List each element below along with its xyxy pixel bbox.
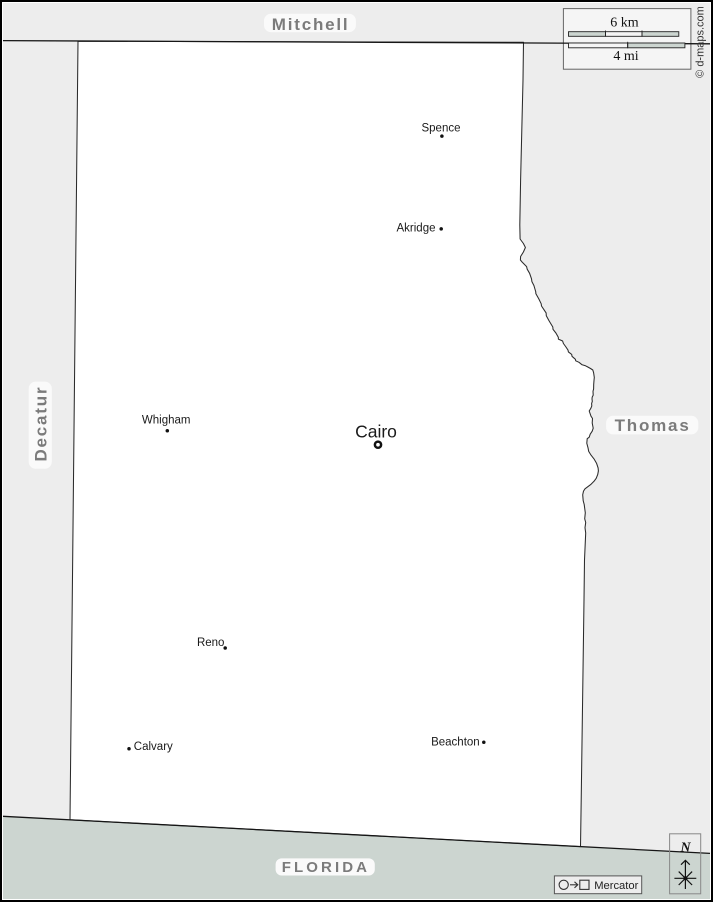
svg-text:Cairo: Cairo [355, 421, 397, 441]
svg-text:Mitchell: Mitchell [272, 15, 350, 34]
svg-text:Reno: Reno [197, 637, 225, 649]
svg-text:Beachton: Beachton [431, 736, 480, 748]
svg-text:6 km: 6 km [610, 16, 639, 31]
svg-text:Decatur: Decatur [32, 386, 51, 462]
svg-text:N: N [680, 840, 692, 855]
svg-text:FLORIDA: FLORIDA [282, 859, 370, 876]
svg-text:Mercator: Mercator [594, 880, 638, 892]
svg-text:Akridge: Akridge [397, 223, 436, 235]
svg-text:4 mi: 4 mi [613, 49, 638, 64]
svg-text:Thomas: Thomas [615, 416, 691, 435]
svg-text:Calvary: Calvary [134, 741, 173, 753]
svg-text:© d-maps.com: © d-maps.com [695, 6, 707, 78]
svg-text:Whigham: Whigham [142, 415, 191, 427]
svg-text:Spence: Spence [421, 123, 460, 135]
